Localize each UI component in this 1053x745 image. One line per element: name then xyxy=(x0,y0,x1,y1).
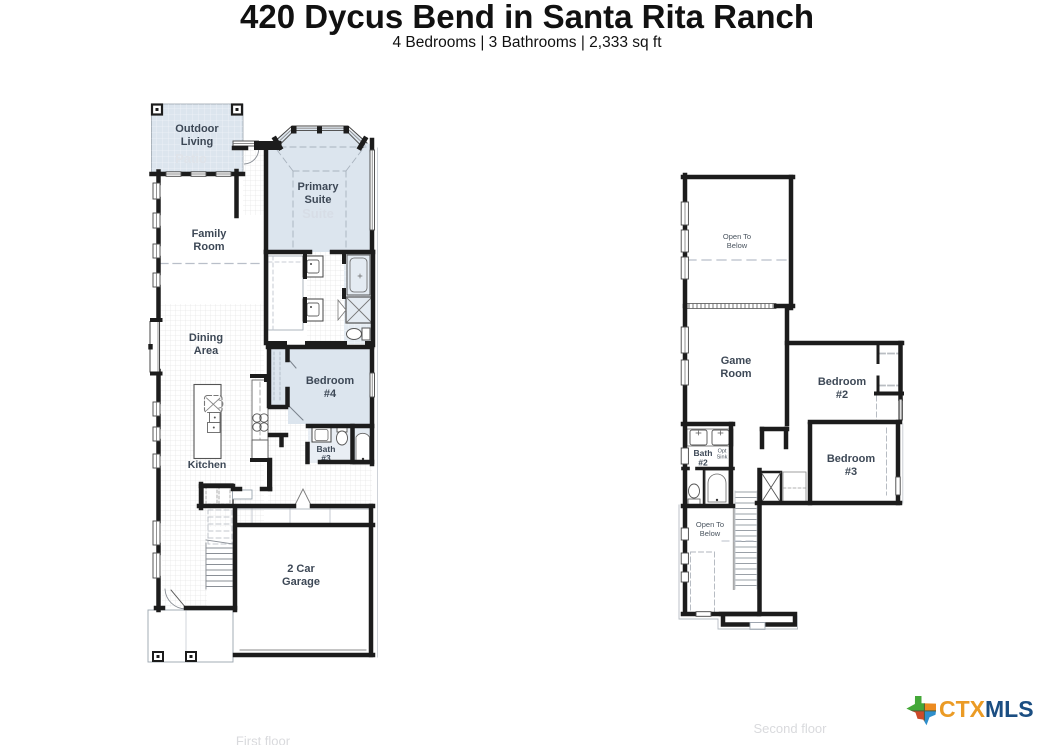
svg-text:Game: Game xyxy=(721,355,752,367)
svg-text:First floor: First floor xyxy=(236,734,291,745)
svg-text:Room: Room xyxy=(193,241,224,253)
svg-text:#2: #2 xyxy=(836,389,848,401)
svg-text:#3: #3 xyxy=(845,466,857,478)
svg-text:Suite: Suite xyxy=(302,206,334,221)
svg-text:Bath: Bath xyxy=(694,448,713,458)
svg-text:Family: Family xyxy=(192,228,228,240)
svg-text:Below: Below xyxy=(700,529,721,538)
svg-text:Open To: Open To xyxy=(696,520,724,529)
svg-text:Open To: Open To xyxy=(723,232,751,241)
svg-text:Room: Room xyxy=(720,368,751,380)
svg-text:Bedroom: Bedroom xyxy=(818,376,867,388)
svg-text:CTXMLS: CTXMLS xyxy=(939,696,1034,722)
svg-text:Dining: Dining xyxy=(189,332,223,344)
svg-text:4 Bedrooms | 3 Bathrooms | 2,3: 4 Bedrooms | 3 Bathrooms | 2,333 sq ft xyxy=(392,34,662,51)
svg-text:Bedroom: Bedroom xyxy=(827,453,876,465)
svg-text:Patio: Patio xyxy=(175,151,207,166)
svg-text:Garage: Garage xyxy=(282,576,320,588)
svg-text:Bedroom: Bedroom xyxy=(306,375,355,387)
svg-text:2 Car: 2 Car xyxy=(287,563,315,575)
svg-text:Outdoor: Outdoor xyxy=(175,123,219,135)
svg-text:Kitchen: Kitchen xyxy=(188,459,227,471)
svg-text:Second floor: Second floor xyxy=(754,721,828,736)
svg-text:Suite: Suite xyxy=(305,194,332,206)
svg-text:Below: Below xyxy=(727,241,748,250)
svg-text:Sink: Sink xyxy=(717,455,728,461)
svg-text:420 Dycus Bend in Santa Rita R: 420 Dycus Bend in Santa Rita Ranch xyxy=(240,0,814,35)
svg-text:Primary: Primary xyxy=(298,181,340,193)
svg-text:#2: #2 xyxy=(698,458,708,468)
svg-text:Living: Living xyxy=(181,136,213,148)
svg-text:Area: Area xyxy=(194,345,219,357)
svg-text:#4: #4 xyxy=(324,388,337,400)
